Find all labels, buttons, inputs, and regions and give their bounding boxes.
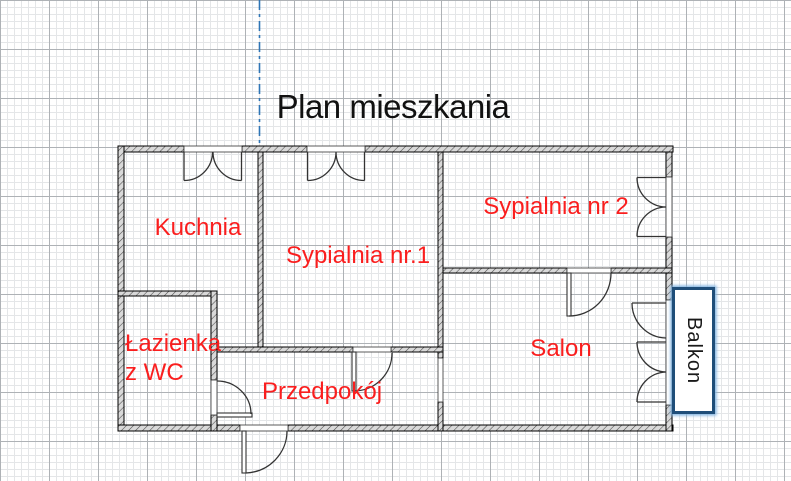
wall-segment	[611, 268, 672, 273]
bedroom2-door-swing	[569, 273, 611, 316]
wall-segment	[438, 402, 443, 431]
wall-segment	[258, 152, 263, 352]
entrance-door-swing	[246, 431, 287, 473]
bedroom2-window-icon	[637, 178, 666, 237]
plan-title: Plan mieszkania	[277, 88, 510, 126]
kitchen-window-opening	[184, 146, 242, 152]
room-label-sypialnia-1: Sypialnia nr.1	[286, 243, 430, 269]
balcony[interactable]: Balkon	[672, 287, 715, 414]
wall-segment	[666, 152, 672, 177]
wall-segment	[118, 425, 240, 431]
entrance-door-leaf	[242, 431, 246, 473]
walls-layer	[118, 146, 673, 431]
bedroom1-window-opening	[307, 146, 365, 152]
room-label-lazienka-line1: Łazienka	[125, 329, 221, 358]
bedroom2-door-leaf	[567, 273, 571, 316]
wall-segment	[211, 415, 217, 431]
room-label-lazienka-line2: z WC	[125, 358, 221, 387]
wall-segment	[443, 268, 567, 273]
wall-segment	[288, 425, 673, 431]
room-label-lazienka: Łazienka z WC	[125, 329, 221, 387]
salon-passage-opening	[438, 358, 443, 402]
wall-segment	[242, 146, 307, 152]
bathroom-door-leaf	[217, 413, 252, 417]
bathroom-door-swing	[217, 381, 251, 414]
wall-segment	[391, 347, 443, 352]
bedroom2-door-opening	[567, 268, 611, 273]
wall-segment	[118, 291, 217, 296]
wall-segment	[118, 146, 184, 152]
kitchen-window-icon	[184, 152, 242, 181]
bedroom1-window-icon	[308, 152, 365, 181]
floor-plan-canvas: Balkon Plan mieszkania Kuchnia Sypialnia…	[0, 0, 791, 481]
openings-layer	[184, 146, 672, 431]
balcony-door-icon	[632, 303, 666, 402]
bedroom1-door-opening	[353, 347, 391, 352]
room-label-kuchnia: Kuchnia	[155, 215, 242, 241]
wall-segment	[365, 146, 673, 152]
entrance-door-opening	[240, 425, 288, 431]
wall-segment	[211, 347, 353, 352]
balcony-label: Balkon	[682, 317, 705, 384]
room-label-salon: Salon	[530, 336, 591, 362]
room-label-sypialnia-2: Sypialnia nr 2	[483, 194, 628, 220]
wall-segment	[438, 152, 443, 358]
room-label-przedpokoj: Przedpokój	[262, 379, 382, 405]
bedroom2-window-opening	[666, 177, 672, 237]
wall-segment	[118, 146, 124, 431]
